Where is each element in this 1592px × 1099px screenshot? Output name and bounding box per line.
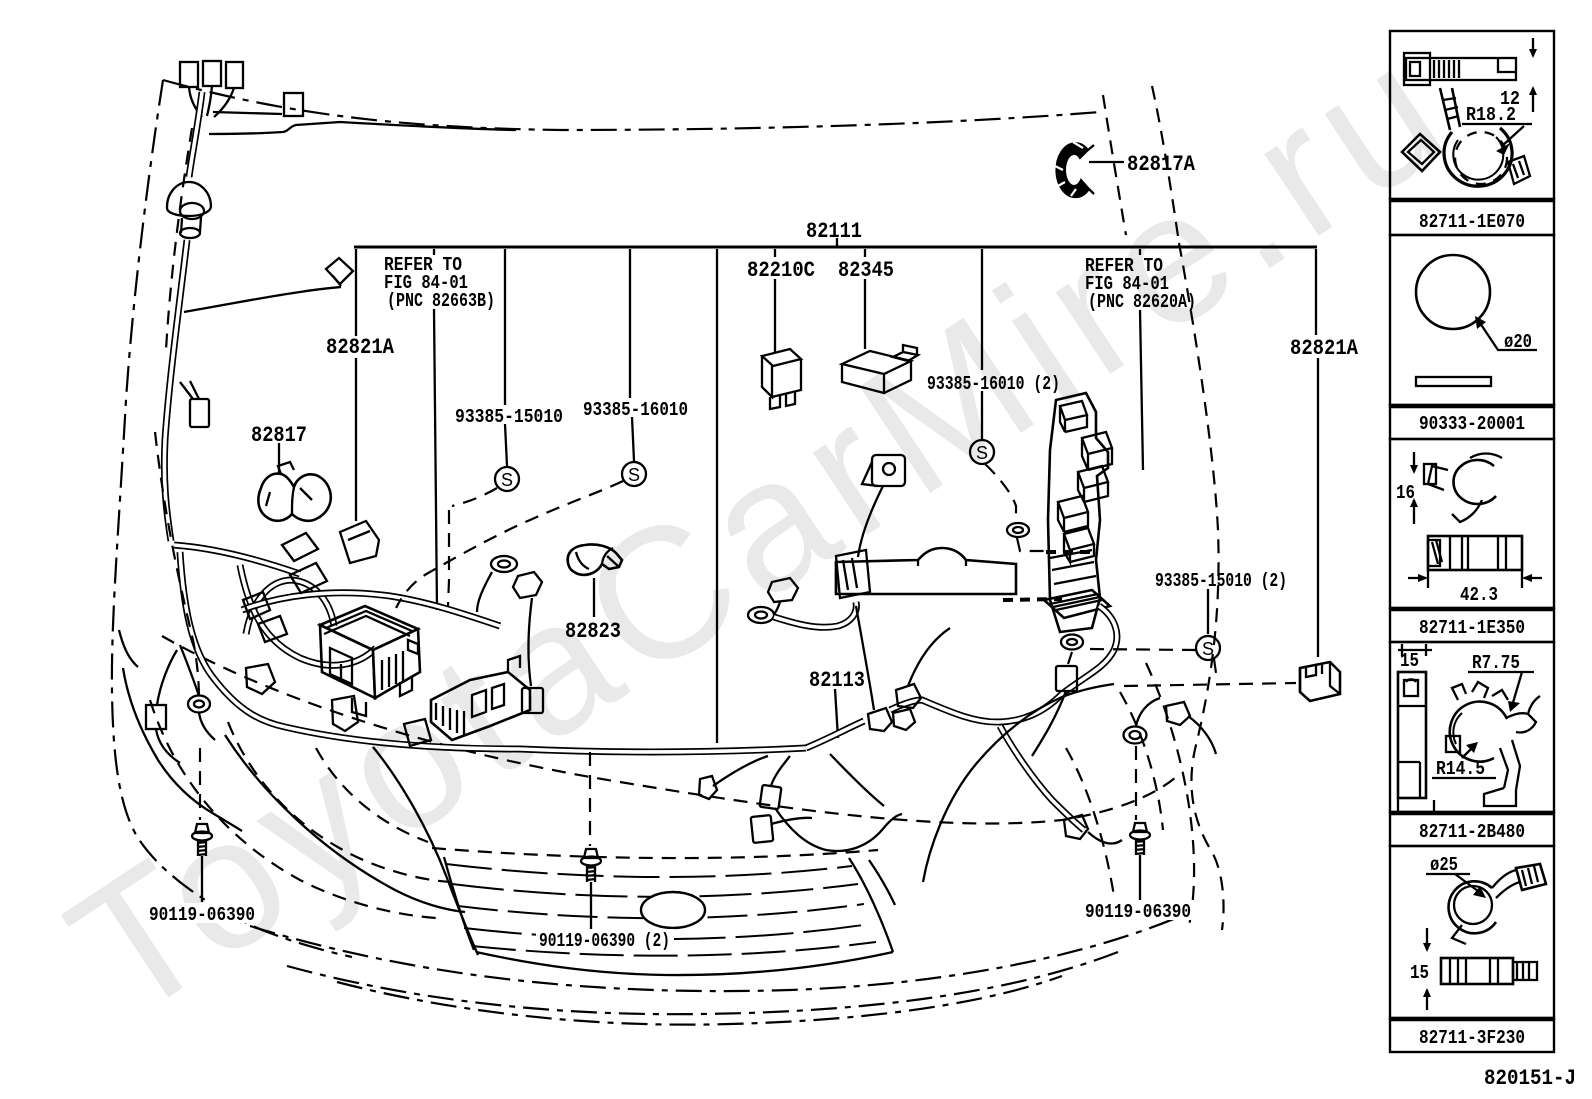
svg-text:82817: 82817 (251, 423, 307, 448)
svg-text:S: S (501, 470, 513, 490)
svg-text:82113: 82113 (809, 668, 865, 693)
svg-text:ø20: ø20 (1504, 331, 1532, 353)
svg-text:82817A: 82817A (1127, 152, 1196, 177)
svg-text:90119-06390: 90119-06390 (149, 904, 255, 926)
svg-text:82821A: 82821A (326, 335, 395, 360)
svg-text:S: S (1202, 639, 1214, 659)
svg-text:S: S (628, 465, 640, 485)
svg-text:(PNC 82663B): (PNC 82663B) (387, 290, 495, 312)
svg-text:R7.75: R7.75 (1472, 652, 1520, 674)
svg-text:82711-2B480: 82711-2B480 (1419, 821, 1525, 843)
svg-text:93385-15010 (2): 93385-15010 (2) (1155, 570, 1287, 592)
svg-text:42.3: 42.3 (1460, 584, 1498, 606)
svg-text:82821A: 82821A (1290, 336, 1359, 361)
svg-text:82711-1E070: 82711-1E070 (1419, 211, 1525, 233)
svg-text:93385-16010 (2): 93385-16010 (2) (927, 373, 1060, 395)
svg-text:ø25: ø25 (1430, 854, 1458, 876)
svg-text:82345: 82345 (838, 258, 894, 283)
svg-text:R18.2: R18.2 (1466, 104, 1516, 126)
svg-text:16: 16 (1396, 482, 1415, 504)
svg-text:90119-06390 (2): 90119-06390 (2) (539, 930, 670, 952)
svg-text:(PNC 82620A): (PNC 82620A) (1088, 291, 1196, 313)
svg-text:90119-06390: 90119-06390 (1085, 901, 1191, 923)
svg-text:82711-3F230: 82711-3F230 (1419, 1027, 1525, 1049)
svg-text:82823: 82823 (565, 619, 621, 644)
svg-text:82210C: 82210C (747, 258, 815, 283)
svg-text:90333-20001: 90333-20001 (1419, 413, 1525, 435)
svg-text:82711-1E350: 82711-1E350 (1419, 617, 1525, 639)
svg-text:S: S (976, 443, 988, 463)
svg-text:93385-16010: 93385-16010 (583, 399, 688, 421)
svg-text:15: 15 (1410, 962, 1429, 984)
svg-text:82111: 82111 (806, 219, 862, 244)
svg-text:93385-15010: 93385-15010 (455, 406, 563, 428)
svg-text:820151-J: 820151-J (1484, 1066, 1576, 1091)
svg-text:R14.5: R14.5 (1436, 758, 1485, 780)
